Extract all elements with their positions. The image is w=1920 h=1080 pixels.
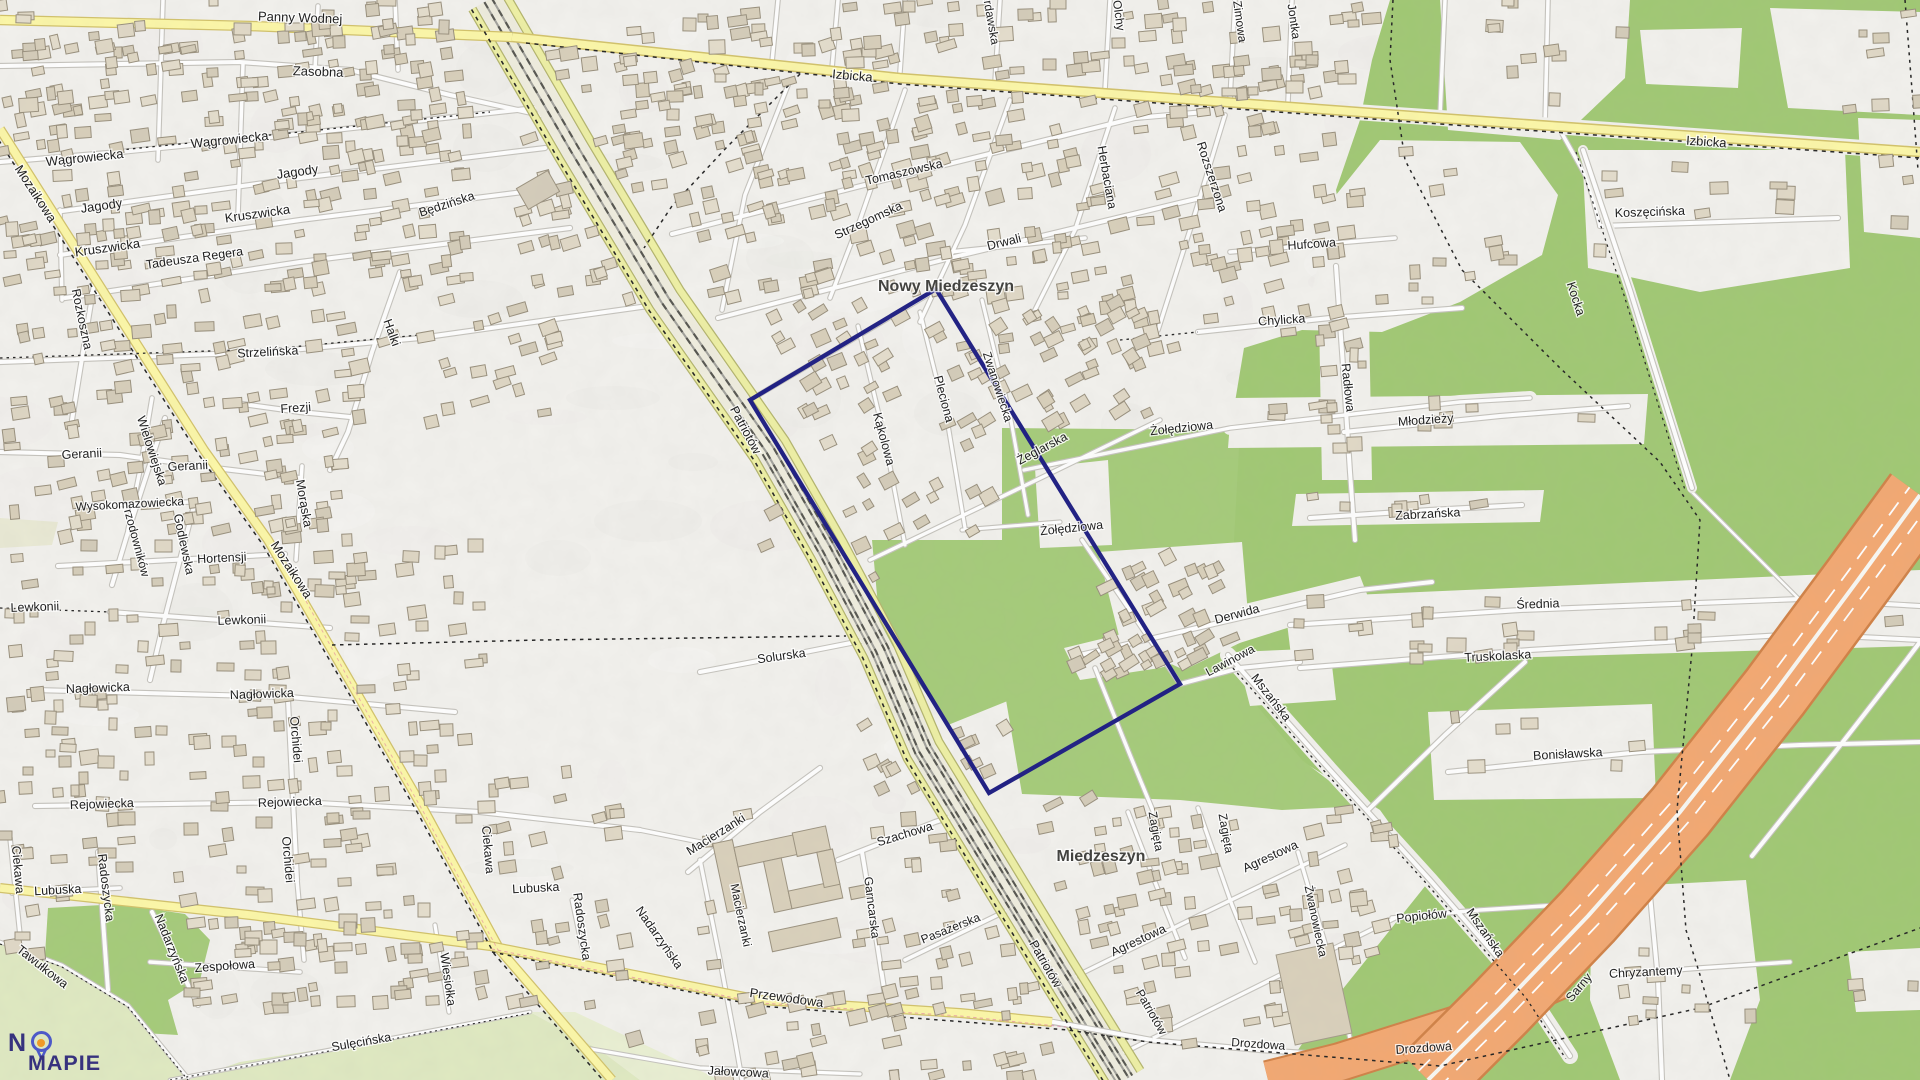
svg-text:Geranii: Geranii — [61, 446, 102, 462]
svg-text:Lewkonii: Lewkonii — [10, 599, 59, 615]
svg-text:Średnia: Średnia — [1516, 595, 1560, 611]
svg-text:Lubuska: Lubuska — [512, 880, 560, 896]
svg-text:N: N — [8, 1029, 26, 1057]
svg-text:Nagłowicka: Nagłowicka — [230, 686, 294, 702]
svg-text:Panny Wodnej: Panny Wodnej — [258, 9, 343, 27]
svg-text:Rejowiecka: Rejowiecka — [258, 794, 322, 810]
svg-text:Nowy Miedzeszyn: Nowy Miedzeszyn — [878, 278, 1014, 295]
svg-text:Rejowiecka: Rejowiecka — [70, 796, 134, 812]
svg-text:Lewkonii: Lewkonii — [217, 612, 266, 628]
svg-text:Koszęcińska: Koszęcińska — [1615, 204, 1686, 220]
svg-text:Izbicka: Izbicka — [1686, 133, 1728, 151]
svg-text:Jałowcowa: Jałowcowa — [707, 1063, 769, 1080]
svg-text:Lubuska: Lubuska — [34, 882, 82, 898]
svg-text:Nagłowicka: Nagłowicka — [66, 680, 130, 696]
svg-text:Zasobna: Zasobna — [293, 63, 345, 80]
svg-text:Geranii: Geranii — [167, 458, 208, 474]
svg-text:Miedzeszyn: Miedzeszyn — [1057, 848, 1146, 865]
svg-text:Hortensji: Hortensji — [197, 550, 247, 567]
svg-text:MAPIE: MAPIE — [28, 1051, 101, 1075]
svg-text:Frezji: Frezji — [280, 400, 311, 416]
